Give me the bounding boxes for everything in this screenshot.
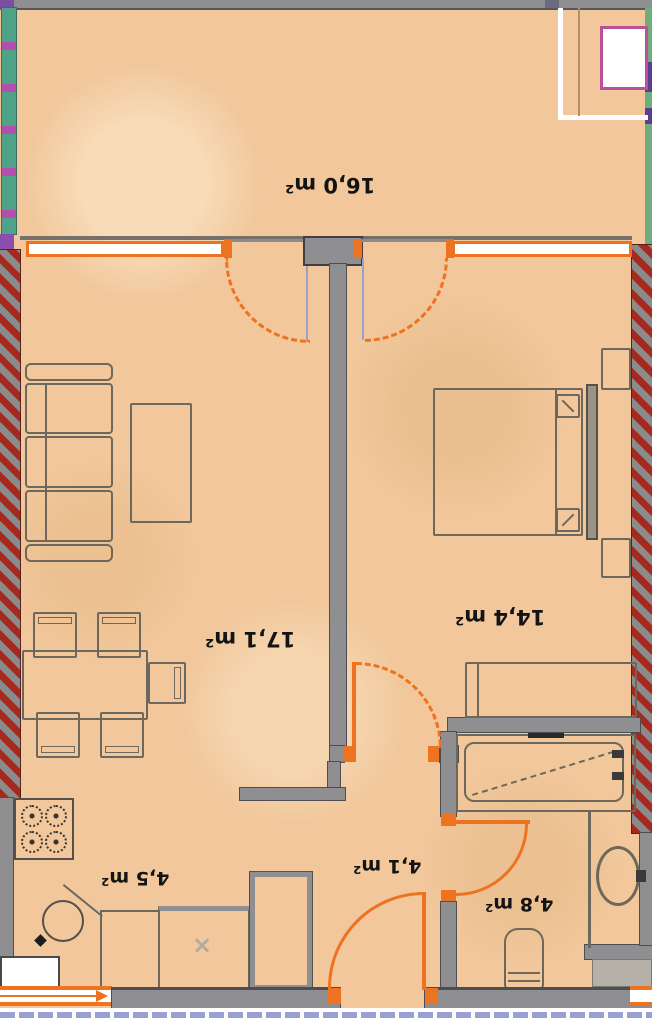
bathroom-left-wall-lower bbox=[441, 902, 456, 1000]
living-room-area-text: 17,1 m² bbox=[205, 627, 295, 651]
kitchen-appliance bbox=[0, 956, 60, 990]
bathroom-left-wall-upper bbox=[441, 732, 456, 816]
counter-edge-h bbox=[100, 910, 158, 912]
sofa-cushion-3 bbox=[25, 490, 113, 542]
basin-counter-line bbox=[588, 812, 591, 948]
top-right-gray-block bbox=[545, 0, 559, 8]
balcony-shaft bbox=[600, 26, 648, 90]
bathroom-top-wall bbox=[448, 718, 640, 732]
hall-closet bbox=[250, 872, 312, 990]
bedroom-door-arc bbox=[356, 662, 442, 748]
left-purple-block bbox=[0, 234, 14, 250]
bathtub-grab-bar bbox=[528, 733, 564, 738]
bottom-wall-left bbox=[112, 988, 340, 1010]
toilet bbox=[504, 928, 544, 990]
right-lower-wall bbox=[640, 833, 652, 945]
kitchen-counter-block: × bbox=[158, 906, 250, 990]
hallway-area-label: 4,1 m² bbox=[330, 850, 445, 882]
entrance-door-arc bbox=[328, 892, 424, 988]
bedroom-door-post-right bbox=[428, 746, 440, 762]
bedroom-balcony-door-post-left bbox=[354, 240, 362, 258]
bedroom-door-lintel bbox=[358, 239, 454, 242]
wardrobe bbox=[465, 662, 637, 718]
hallway-area-text: 4,1 m² bbox=[353, 855, 421, 877]
kitchen-sink bbox=[42, 900, 84, 942]
kitchen-left-wall bbox=[0, 798, 13, 958]
living-balcony-door-post-left bbox=[224, 240, 232, 258]
kitchen-bottom-window bbox=[0, 986, 112, 1006]
living-room-area-label: 17,1 m² bbox=[180, 622, 320, 656]
sofa-cushion-2 bbox=[25, 436, 113, 488]
stove bbox=[14, 798, 74, 860]
bathtub-tap-1 bbox=[612, 750, 624, 758]
kitchen-cross-marker: × bbox=[192, 931, 212, 959]
right-bottom-window bbox=[630, 986, 652, 1006]
dining-chair-5 bbox=[148, 662, 186, 704]
washbasin-tap bbox=[636, 870, 646, 882]
sofa-backrest-line bbox=[45, 383, 47, 542]
bedroom-area-label: 14,4 m² bbox=[430, 600, 570, 634]
balcony-area-text: 16,0 m² bbox=[285, 173, 375, 197]
sofa-armrest-bottom bbox=[25, 544, 113, 562]
balcony-area-label: 16,0 m² bbox=[260, 168, 400, 202]
headboard bbox=[586, 384, 598, 540]
sofa-cushion-1 bbox=[25, 383, 113, 434]
entrance-door-post-left bbox=[328, 988, 341, 1004]
bottom-wall-right bbox=[425, 988, 652, 1010]
living-balcony-door-arc bbox=[225, 258, 310, 343]
counter-edge-v bbox=[100, 912, 102, 988]
bathroom-area-text: 4,8 m² bbox=[485, 893, 553, 915]
balcony-frame-line bbox=[578, 8, 580, 116]
living-kitchen-wall bbox=[240, 788, 345, 800]
bedroom-door-post-left bbox=[344, 746, 356, 762]
bathroom-area-label: 4,8 m² bbox=[462, 888, 577, 920]
bottom-checker-strip bbox=[0, 1012, 652, 1018]
living-door-lintel bbox=[224, 239, 318, 242]
floor-plan-canvas: 16,0 m² 17,1 m² bbox=[0, 0, 652, 1018]
bedroom-area-text: 14,4 m² bbox=[455, 605, 545, 629]
bedroom-window bbox=[452, 241, 632, 257]
bathroom-bottom-inner-wall bbox=[585, 945, 652, 959]
bathroom-door-post-top bbox=[441, 814, 456, 826]
sofa-armrest-top bbox=[25, 363, 113, 381]
entrance-door-post-right bbox=[425, 988, 438, 1004]
hall-west-wall bbox=[328, 762, 340, 790]
left-balcony-railing-strip bbox=[2, 8, 16, 234]
kitchen-area-text: 4,5 m² bbox=[101, 867, 169, 889]
living-room-window bbox=[26, 241, 224, 257]
bathroom-door-arc bbox=[456, 824, 528, 896]
bathtub-tap-2 bbox=[612, 772, 624, 780]
bathroom-door-post-bottom bbox=[441, 890, 456, 902]
bedroom-door-wall-stub-left bbox=[330, 746, 344, 762]
dining-table bbox=[22, 650, 148, 720]
nightstand-top bbox=[601, 348, 631, 390]
pillow-bottom bbox=[556, 508, 580, 532]
pillow-top bbox=[556, 394, 580, 418]
living-bedroom-partition bbox=[330, 264, 346, 746]
nightstand-bottom bbox=[601, 538, 631, 578]
t-column bbox=[305, 238, 361, 264]
sink-tap bbox=[34, 934, 47, 947]
exterior-corner-block bbox=[592, 959, 652, 987]
coffee-table bbox=[130, 403, 192, 523]
washbasin bbox=[596, 846, 640, 906]
left-load-bearing-wall bbox=[0, 250, 20, 798]
bedroom-balcony-door-arc bbox=[364, 258, 448, 342]
kitchen-area-label: 4,5 m² bbox=[78, 862, 193, 894]
